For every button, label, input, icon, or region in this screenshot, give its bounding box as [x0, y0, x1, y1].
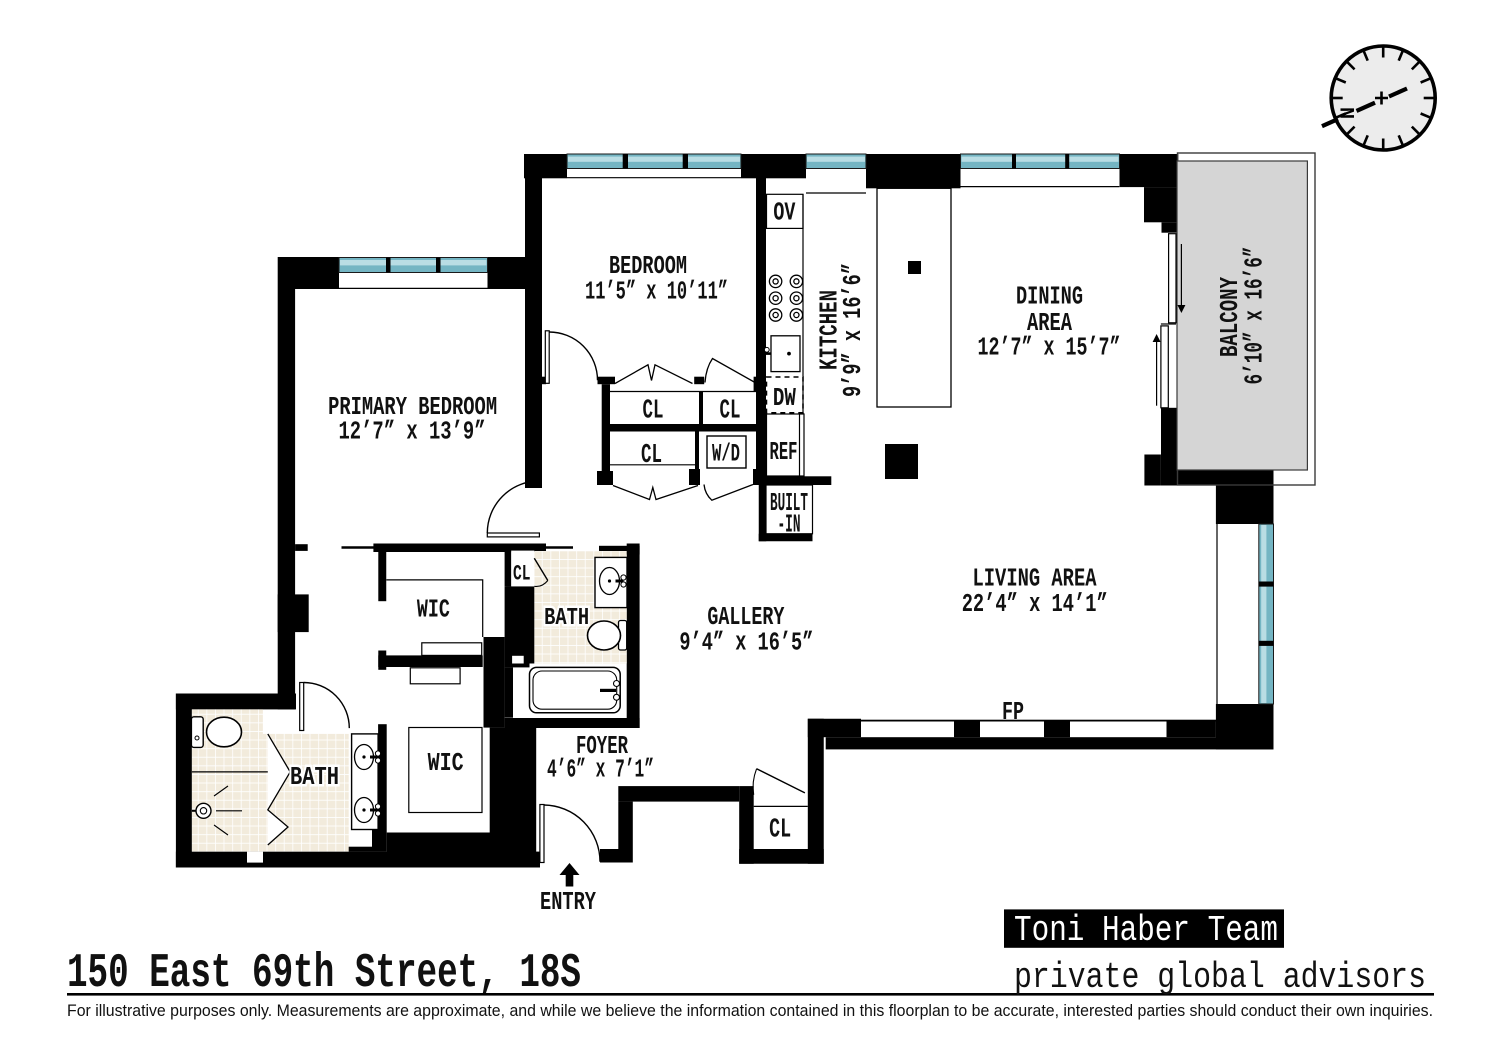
svg-text:For illustrative purposes only: For illustrative purposes only. Measurem…	[67, 1002, 1433, 1020]
svg-text:W/D: W/D	[712, 440, 740, 469]
svg-text:22’4” x 14’1”: 22’4” x 14’1”	[962, 590, 1108, 619]
svg-text:4’6” x 7’1”: 4’6” x 7’1”	[547, 756, 654, 785]
svg-text:12’7” x 15’7”: 12’7” x 15’7”	[978, 334, 1121, 363]
svg-text:CL: CL	[720, 397, 741, 427]
svg-text:-IN: -IN	[778, 510, 801, 540]
svg-text:OV: OV	[773, 198, 795, 228]
svg-text:BATH: BATH	[290, 762, 339, 792]
svg-text:CL: CL	[643, 397, 664, 427]
svg-text:Toni Haber Team: Toni Haber Team	[1014, 910, 1278, 951]
svg-text:DW: DW	[773, 383, 796, 413]
svg-text:11’5” x 10’11”: 11’5” x 10’11”	[585, 278, 728, 307]
svg-text:CL: CL	[513, 562, 531, 587]
svg-text:private global advisors: private global advisors	[1014, 957, 1426, 998]
svg-text:CL: CL	[769, 816, 791, 846]
svg-text:DINING: DINING	[1016, 283, 1083, 312]
svg-text:9’9” x 16’6”: 9’9” x 16’6”	[839, 263, 868, 397]
svg-text:12’7” x 13’9”: 12’7” x 13’9”	[339, 418, 486, 447]
svg-text:150 East 69th Street, 18S: 150 East 69th Street, 18S	[67, 947, 581, 1001]
svg-text:9’4” x 16’5”: 9’4” x 16’5”	[679, 629, 813, 658]
svg-text:WIC: WIC	[428, 748, 464, 778]
svg-text:FP: FP	[1002, 697, 1024, 727]
svg-text:6’10” x 16’6”: 6’10” x 16’6”	[1241, 247, 1270, 385]
svg-text:REF: REF	[770, 437, 798, 467]
svg-text:WIC: WIC	[417, 595, 450, 625]
svg-text:BATH: BATH	[544, 605, 589, 632]
svg-text:N: N	[1334, 107, 1357, 119]
svg-text:CL: CL	[641, 441, 662, 471]
svg-text:ENTRY: ENTRY	[540, 888, 597, 917]
